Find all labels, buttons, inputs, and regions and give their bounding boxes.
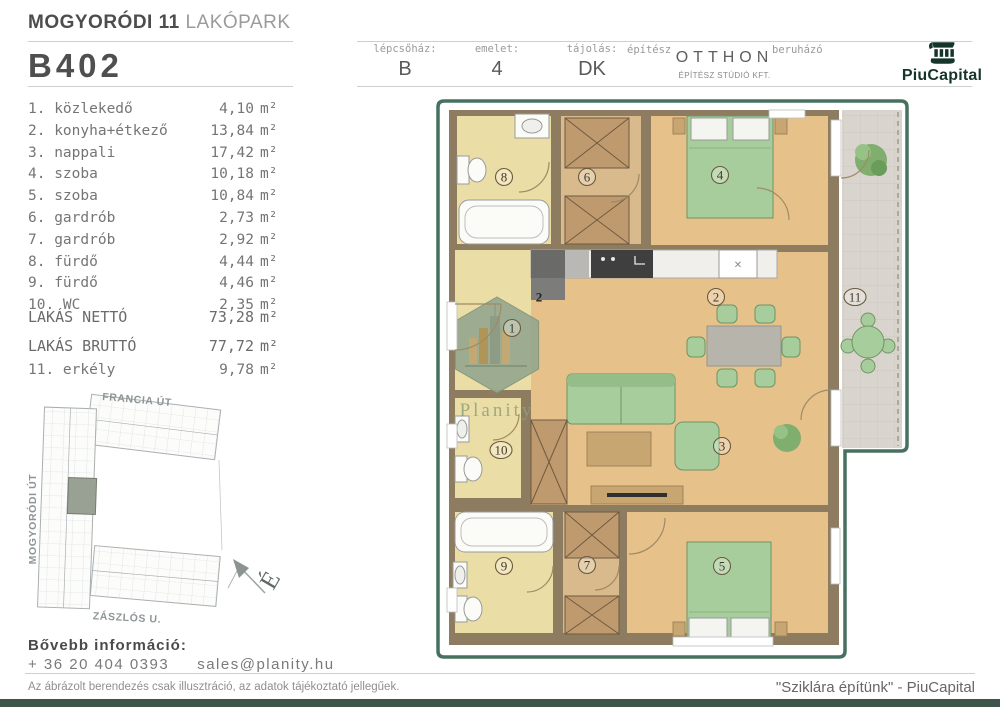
compass-letter: É [254, 567, 286, 594]
info-orientation: tájolás: DK [547, 43, 637, 81]
unit-id: B402 [28, 47, 123, 85]
room-row: 7. gardrób2,92m² [28, 230, 290, 252]
room-row: 3. nappali17,42m² [28, 143, 290, 165]
room-row: 9. fürdő4,46m² [28, 273, 290, 295]
datasheet-page: MOGYORÓDI 11 LAKÓPARK B402 lépcsőház: B … [0, 0, 1000, 707]
room-number-label: 6 [584, 170, 591, 185]
room-row: LAKÁS NETTÓ73,28m² [28, 303, 290, 332]
room-row: 1. közlekedő4,10m² [28, 99, 290, 121]
piucapital-column-icon [922, 40, 962, 66]
extra-room-list: 11. erkély9,78m² [28, 359, 290, 381]
room-number-label: 2 [536, 290, 543, 305]
bedroom4-furniture [673, 116, 787, 218]
developer-name: PiuCapital [898, 67, 986, 85]
room-number-label: 10 [495, 443, 508, 458]
room-number-label: 11 [849, 290, 862, 305]
street-left-label: MOGYORÓDI ÚT [26, 474, 39, 565]
room-number-label: 5 [719, 559, 726, 574]
project-title-bold: MOGYORÓDI 11 [28, 12, 180, 33]
coffee-table-icon [587, 432, 651, 466]
room-row: LAKÁS BRUTTÓ77,72m² [28, 332, 290, 361]
room-row: 5. szoba10,84m² [28, 186, 290, 208]
site-map-bottom-wing [90, 546, 220, 607]
info-orientation-value: DK [547, 58, 637, 81]
contact-email: sales@planity.hu [197, 656, 334, 673]
room-number-label: 7 [584, 558, 591, 573]
room-number-label: 4 [717, 168, 724, 183]
armchair-icon [675, 422, 719, 470]
contact-line: + 36 20 404 0393sales@planity.hu [28, 656, 335, 673]
svg-text:✕: ✕ [734, 260, 742, 271]
architect-sub: ÉPÍTÉSZ STÚDIÓ KFT. [672, 71, 777, 80]
bedroom5-furniture [673, 542, 787, 640]
info-staircase-value: B [360, 58, 450, 81]
divider [357, 41, 972, 42]
room-list: 1. közlekedő4,10m²2. konyha+étkező13,84m… [28, 99, 290, 317]
divider [28, 41, 293, 42]
room-row: 8. fürdő4,44m² [28, 252, 290, 274]
divider [25, 673, 975, 674]
room-number-label: 2 [713, 290, 720, 305]
info-floor-value: 4 [452, 58, 542, 81]
room-row: 4. szoba10,18m² [28, 164, 290, 186]
info-staircase: lépcsőház: B [360, 43, 450, 81]
site-map-highlighted-unit [67, 478, 96, 515]
room-number-label: 9 [501, 559, 508, 574]
room-number-label: 3 [719, 439, 726, 454]
footer-disclaimer: Az ábrázolt berendezés csak illusztráció… [28, 681, 399, 693]
balcony-11 [841, 110, 902, 448]
hall-wardrobe [531, 420, 567, 504]
site-map: FRANCIA ÚT MOGYORÓDI ÚT ZÁSZLÓS U. É [25, 388, 300, 625]
totals-list: LAKÁS NETTÓ73,28m²LAKÁS BRUTTÓ77,72m² [28, 303, 290, 360]
architect-name: OTTHON [672, 49, 777, 67]
divider [28, 86, 293, 87]
developer-logo: PiuCapital [898, 40, 986, 85]
contact-heading: Bővebb információ: [28, 637, 187, 654]
room-number-label: 1 [509, 321, 516, 336]
project-title-light: LAKÓPARK [185, 12, 290, 33]
room-row: 6. gardrób2,73m² [28, 208, 290, 230]
footer-bar [0, 699, 1000, 707]
floor-plan: ✕ [435, 98, 917, 660]
architect-logo: OTTHON ÉPÍTÉSZ STÚDIÓ KFT. [672, 49, 777, 80]
compass-north-icon: É [228, 559, 286, 594]
planity-watermark: Planity [455, 297, 538, 421]
info-floor: emelet: 4 [452, 43, 542, 81]
contact-phone: + 36 20 404 0393 [28, 656, 169, 673]
developer-label: beruházó [772, 44, 823, 56]
info-staircase-label: lépcsőház: [360, 43, 450, 55]
footer-slogan: "Sziklára építünk" - PiuCapital [776, 679, 975, 696]
architect-label: építész [627, 44, 671, 56]
room-number-label: 8 [501, 170, 508, 185]
project-title: MOGYORÓDI 11 LAKÓPARK [28, 12, 291, 34]
info-floor-label: emelet: [452, 43, 542, 55]
room-row: 2. konyha+étkező13,84m² [28, 121, 290, 143]
street-bottom-label: ZÁSZLÓS U. [93, 609, 162, 625]
watermark-text: Planity [460, 400, 535, 421]
divider [357, 86, 972, 87]
info-orientation-label: tájolás: [547, 43, 637, 55]
dining-table-icon [707, 326, 781, 366]
room-row: 11. erkély9,78m² [28, 359, 290, 381]
